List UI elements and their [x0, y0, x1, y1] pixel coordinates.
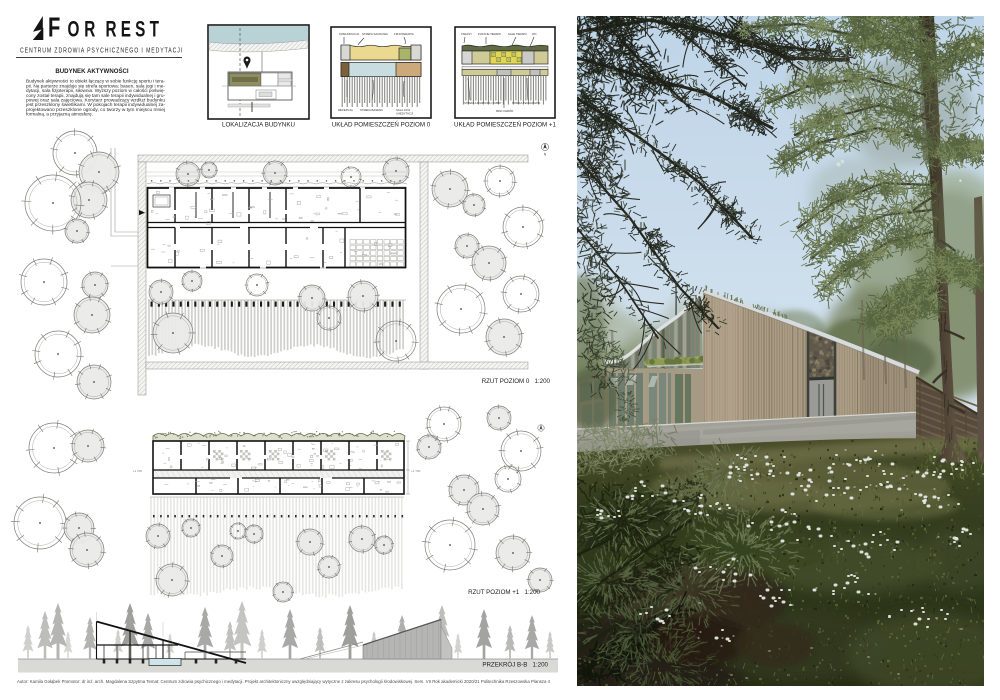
svg-text:formalną, a przyjazną atmosfer: formalną, a przyjazną atmosferę. — [26, 112, 93, 117]
svg-text:TARASY: TARASY — [461, 32, 472, 36]
svg-text:KOMUNIKACJA: KOMUNIKACJA — [339, 32, 359, 36]
svg-text:POKOJE TERAPII: POKOJE TERAPII — [478, 32, 501, 36]
svg-text:SALE TERAPII: SALE TERAPII — [508, 32, 527, 36]
svg-text:F: F — [48, 12, 60, 43]
svg-text:UKŁAD POMIESZCZEŃ POZIOM +1: UKŁAD POMIESZCZEŃ POZIOM +1 — [454, 122, 556, 129]
svg-text:STREFA SAUNOWA: STREFA SAUNOWA — [362, 32, 388, 36]
svg-text:CENTRUM ZDROWIA PSYCHICZNEGO I: CENTRUM ZDROWIA PSYCHICZNEGO I MEDYTACJI — [20, 48, 183, 55]
svg-text:+1 700: +1 700 — [411, 469, 421, 473]
svg-text:STREFA KANAPOWA I LOBBY: STREFA KANAPOWA I LOBBY — [464, 101, 502, 105]
svg-text:OR: OR — [68, 18, 101, 43]
svg-text:RECEPCJA: RECEPCJA — [338, 108, 353, 112]
svg-text:+1 700: +1 700 — [133, 469, 143, 473]
svg-text:STREFA TECHNICZNA: STREFA TECHNICZNA — [512, 101, 541, 105]
svg-text:PRZEKRÓJ B-B 1:200: PRZEKRÓJ B-B 1:200 — [482, 662, 548, 669]
svg-text:UKŁAD POMIESZCZEŃ POZIOM 0: UKŁAD POMIESZCZEŃ POZIOM 0 — [332, 122, 431, 129]
svg-text:MINI OGRÓD: MINI OGRÓD — [496, 108, 513, 113]
svg-text:BUDYNEK AKTYWNOŚCI: BUDYNEK AKTYWNOŚCI — [55, 68, 129, 75]
svg-text:I MEDYTACJI: I MEDYTACJI — [396, 112, 413, 116]
svg-text:LOKALIZACJA BUDYNKU: LOKALIZACJA BUDYNKU — [222, 122, 295, 129]
svg-text:Autor: Kamila Gołąbek Promot: Autor: Kamila Gołąbek Promotor: dr inż. … — [17, 679, 551, 684]
svg-text:RZUT POZIOM 0 1:200: RZUT POZIOM 0 1:200 — [482, 378, 551, 385]
svg-text:RZUT POZIOM +1 1:200: RZUT POZIOM +1 1:200 — [468, 589, 540, 596]
svg-text:FIZJOTERAPIA: FIZJOTERAPIA — [394, 32, 414, 36]
svg-text:WC: WC — [532, 32, 537, 36]
svg-text:REST: REST — [106, 18, 164, 43]
svg-text:STREFA BASENU: STREFA BASENU — [360, 108, 383, 112]
